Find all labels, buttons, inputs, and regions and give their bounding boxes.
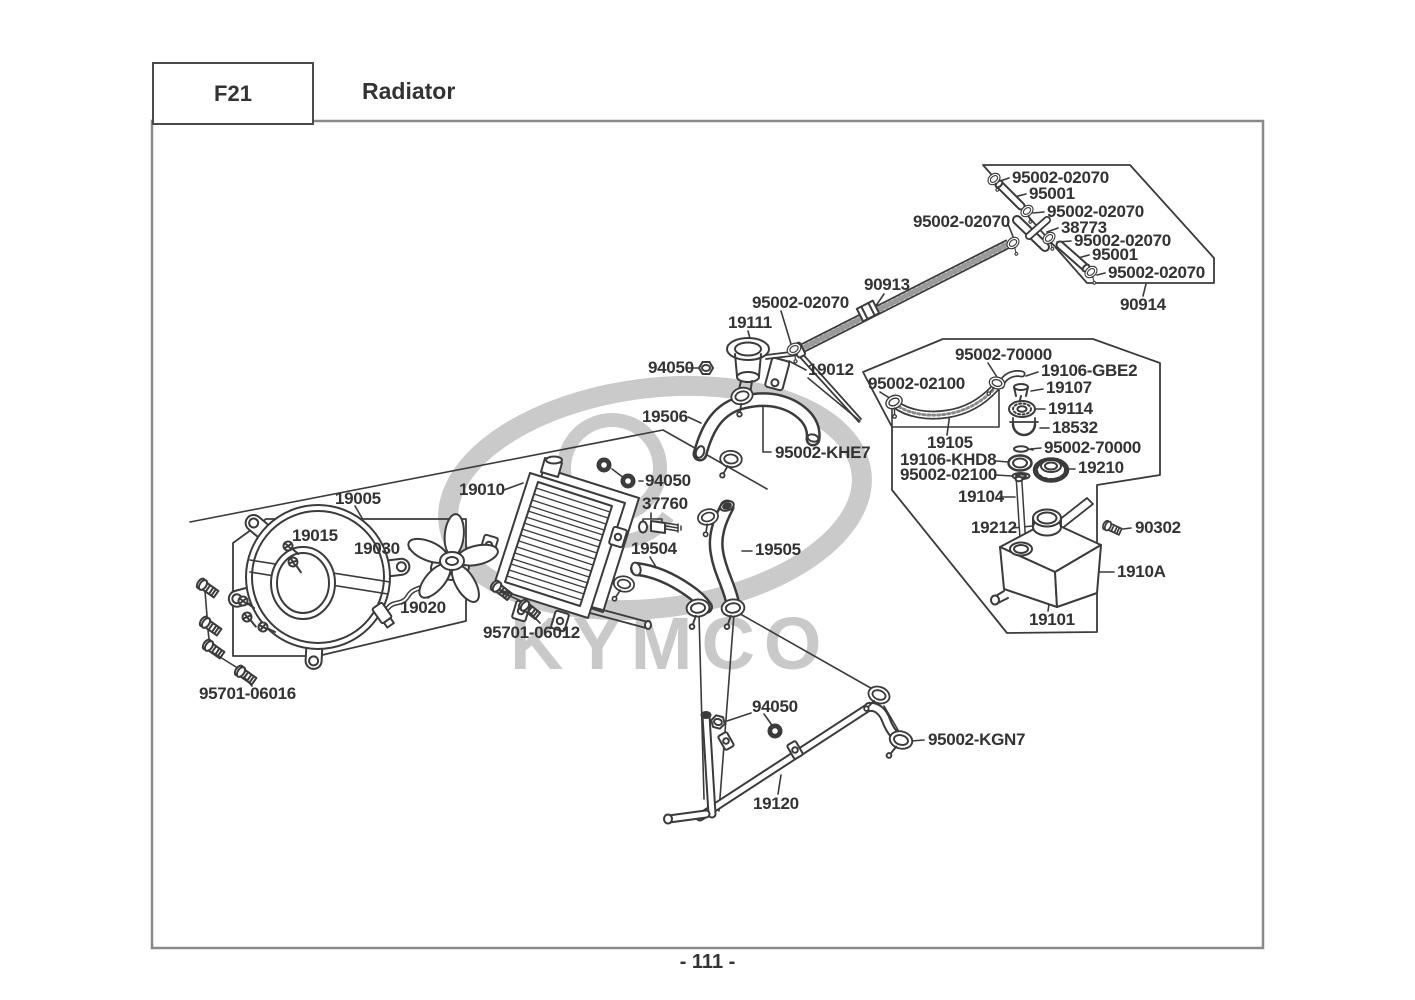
part-label-95001: 95001 <box>1092 245 1138 265</box>
part-label-95002-02100: 95002-02100 <box>868 374 965 394</box>
part-label-95002-02100: 95002-02100 <box>900 465 997 485</box>
part-label-95002-70000: 95002-70000 <box>1044 438 1141 458</box>
part-label-95002-70000: 95002-70000 <box>955 345 1052 365</box>
part-label-95701-06012: 95701-06012 <box>483 623 580 643</box>
part-label-37760: 37760 <box>642 494 688 514</box>
part-label-19012: 19012 <box>808 360 854 380</box>
section-code: F21 <box>214 81 252 107</box>
part-label-95002-KGN7: 95002-KGN7 <box>928 730 1025 750</box>
part-label-19505: 19505 <box>755 540 801 560</box>
part-label-94050: 94050 <box>752 697 798 717</box>
part-label-19210: 19210 <box>1078 458 1124 478</box>
part-label-19005: 19005 <box>335 489 381 509</box>
part-label-19107: 19107 <box>1046 378 1092 398</box>
part-label-90914: 90914 <box>1120 295 1166 315</box>
part-label-19120: 19120 <box>753 794 799 814</box>
part-label-19015: 19015 <box>292 526 338 546</box>
part-label-19506: 19506 <box>642 407 688 427</box>
part-labels-layer: 95002-020709500195002-020703877395002-02… <box>0 0 1415 1000</box>
part-label-19010: 19010 <box>459 480 505 500</box>
part-label-95002-02070: 95002-02070 <box>1108 263 1205 283</box>
page-number: - 111 - <box>0 951 1415 974</box>
part-label-95002-02070: 95002-02070 <box>913 212 1010 232</box>
part-label-19030: 19030 <box>354 539 400 559</box>
part-label-19020: 19020 <box>400 598 446 618</box>
part-label-19101: 19101 <box>1029 610 1075 630</box>
part-label-1910A: 1910A <box>1117 562 1166 582</box>
part-label-90302: 90302 <box>1135 518 1181 538</box>
part-label-95001: 95001 <box>1029 184 1075 204</box>
section-code-box: F21 <box>152 62 314 125</box>
part-label-94050: 94050 <box>645 471 691 491</box>
part-label-19104: 19104 <box>958 487 1004 507</box>
part-label-18532: 18532 <box>1052 418 1098 438</box>
part-label-19504: 19504 <box>631 539 677 559</box>
part-label-95002-KHE7: 95002-KHE7 <box>775 443 870 463</box>
page-title: Radiator <box>362 62 455 121</box>
catalog-page: KYMCO <box>0 0 1415 1000</box>
part-label-95002-02070: 95002-02070 <box>752 293 849 313</box>
part-label-19212: 19212 <box>971 518 1017 538</box>
part-label-90913: 90913 <box>864 275 910 295</box>
part-label-19114: 19114 <box>1048 399 1093 419</box>
part-label-95701-06016: 95701-06016 <box>199 684 296 704</box>
part-label-19111: 19111 <box>728 313 772 333</box>
part-label-94050: 94050 <box>648 358 694 378</box>
